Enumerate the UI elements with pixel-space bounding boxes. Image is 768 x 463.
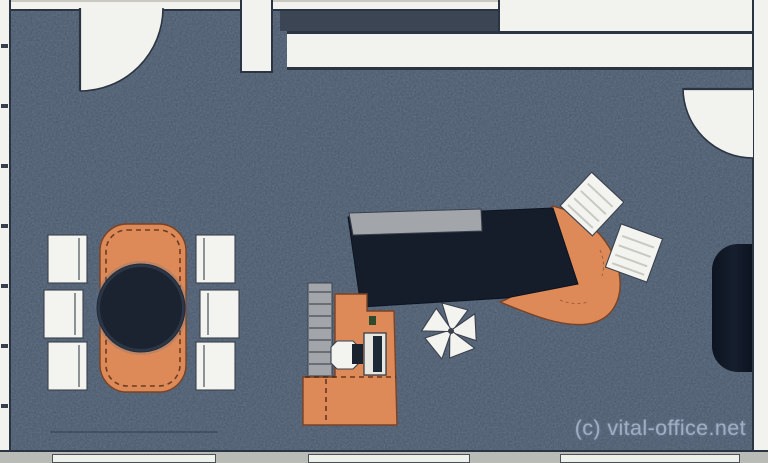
conference-chair <box>196 342 235 390</box>
shelf-rail <box>308 283 332 383</box>
monitor-block <box>352 344 363 364</box>
door-right <box>683 88 753 158</box>
desk-accessory <box>369 316 376 325</box>
floor-plan-canvas: (c) vital-office.net <box>0 0 768 463</box>
desk-area <box>303 172 663 425</box>
conference-area <box>44 224 239 392</box>
chair-star-base <box>421 303 483 364</box>
conference-chair <box>200 290 239 338</box>
conference-chair <box>44 290 83 338</box>
furniture-layer <box>0 0 768 463</box>
tall-cabinet <box>712 244 752 372</box>
door-swing-area <box>80 8 163 91</box>
conference-chair <box>196 235 235 283</box>
watermark-text: (c) vital-office.net <box>575 416 746 441</box>
desk-privacy-screen <box>349 209 482 235</box>
conference-chair <box>48 235 87 283</box>
conference-chair <box>48 342 87 390</box>
door-swing-area <box>683 88 753 158</box>
cpu-tower-front <box>373 336 382 372</box>
door-top-left <box>80 8 163 91</box>
